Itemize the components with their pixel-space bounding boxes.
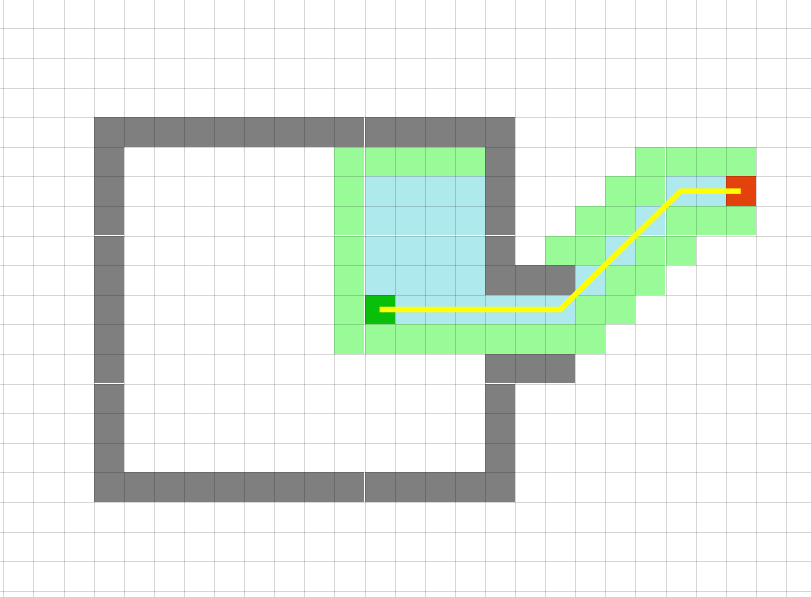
visited-cell bbox=[395, 176, 425, 206]
visited-cell bbox=[395, 236, 425, 266]
wall-cell[interactable] bbox=[94, 117, 124, 147]
frontier-cell bbox=[696, 206, 726, 236]
wall-cell[interactable] bbox=[485, 354, 515, 384]
wall-cell[interactable] bbox=[304, 117, 334, 147]
frontier-cell bbox=[455, 324, 485, 354]
frontier-cell bbox=[334, 324, 364, 354]
wall-cell[interactable] bbox=[274, 117, 304, 147]
start-cell[interactable] bbox=[365, 295, 395, 325]
wall-cell[interactable] bbox=[485, 176, 515, 206]
frontier-cell bbox=[395, 324, 425, 354]
visited-cell bbox=[395, 206, 425, 236]
cells-layer bbox=[0, 0, 811, 597]
wall-cell[interactable] bbox=[94, 354, 124, 384]
wall-cell[interactable] bbox=[94, 295, 124, 325]
frontier-cell bbox=[395, 147, 425, 177]
wall-cell[interactable] bbox=[455, 472, 485, 502]
frontier-cell bbox=[575, 206, 605, 236]
wall-cell[interactable] bbox=[485, 236, 515, 266]
wall-cell[interactable] bbox=[244, 117, 274, 147]
wall-cell[interactable] bbox=[214, 117, 244, 147]
wall-cell[interactable] bbox=[154, 117, 184, 147]
frontier-cell bbox=[666, 206, 696, 236]
visited-cell bbox=[425, 206, 455, 236]
visited-cell bbox=[365, 265, 395, 295]
wall-cell[interactable] bbox=[485, 206, 515, 236]
wall-cell[interactable] bbox=[334, 472, 364, 502]
wall-cell[interactable] bbox=[485, 384, 515, 414]
visited-cell bbox=[365, 206, 395, 236]
wall-cell[interactable] bbox=[94, 265, 124, 295]
pathfinding-grid-canvas[interactable] bbox=[0, 0, 811, 597]
visited-cell bbox=[365, 176, 395, 206]
goal-cell[interactable] bbox=[726, 176, 756, 206]
wall-cell[interactable] bbox=[94, 384, 124, 414]
visited-cell bbox=[395, 295, 425, 325]
visited-cell bbox=[425, 295, 455, 325]
wall-cell[interactable] bbox=[485, 443, 515, 473]
wall-cell[interactable] bbox=[365, 472, 395, 502]
wall-cell[interactable] bbox=[94, 206, 124, 236]
frontier-cell bbox=[334, 176, 364, 206]
wall-cell[interactable] bbox=[94, 324, 124, 354]
frontier-cell bbox=[334, 147, 364, 177]
frontier-cell bbox=[575, 236, 605, 266]
frontier-cell bbox=[365, 324, 395, 354]
frontier-cell bbox=[605, 176, 635, 206]
frontier-cell bbox=[575, 324, 605, 354]
wall-cell[interactable] bbox=[545, 265, 575, 295]
visited-cell bbox=[455, 176, 485, 206]
wall-cell[interactable] bbox=[94, 176, 124, 206]
visited-cell bbox=[455, 236, 485, 266]
visited-cell bbox=[425, 176, 455, 206]
visited-cell bbox=[666, 176, 696, 206]
frontier-cell bbox=[666, 147, 696, 177]
wall-cell[interactable] bbox=[94, 443, 124, 473]
wall-cell[interactable] bbox=[184, 472, 214, 502]
wall-cell[interactable] bbox=[365, 117, 395, 147]
visited-cell bbox=[425, 265, 455, 295]
visited-cell bbox=[696, 176, 726, 206]
wall-cell[interactable] bbox=[154, 472, 184, 502]
visited-cell bbox=[455, 206, 485, 236]
wall-cell[interactable] bbox=[485, 117, 515, 147]
wall-cell[interactable] bbox=[545, 354, 575, 384]
visited-cell bbox=[635, 206, 665, 236]
frontier-cell bbox=[365, 147, 395, 177]
wall-cell[interactable] bbox=[214, 472, 244, 502]
wall-cell[interactable] bbox=[425, 472, 455, 502]
wall-cell[interactable] bbox=[515, 354, 545, 384]
visited-cell bbox=[455, 295, 485, 325]
wall-cell[interactable] bbox=[334, 117, 364, 147]
visited-cell bbox=[575, 265, 605, 295]
frontier-cell bbox=[635, 265, 665, 295]
visited-cell bbox=[425, 236, 455, 266]
wall-cell[interactable] bbox=[485, 265, 515, 295]
visited-cell bbox=[365, 236, 395, 266]
visited-cell bbox=[515, 295, 545, 325]
frontier-cell bbox=[605, 265, 635, 295]
frontier-cell bbox=[605, 295, 635, 325]
wall-cell[interactable] bbox=[184, 117, 214, 147]
frontier-cell bbox=[635, 176, 665, 206]
visited-cell bbox=[485, 295, 515, 325]
wall-cell[interactable] bbox=[395, 117, 425, 147]
wall-cell[interactable] bbox=[94, 413, 124, 443]
wall-cell[interactable] bbox=[244, 472, 274, 502]
frontier-cell bbox=[334, 295, 364, 325]
visited-cell bbox=[455, 265, 485, 295]
frontier-cell bbox=[666, 236, 696, 266]
wall-cell[interactable] bbox=[455, 117, 485, 147]
frontier-cell bbox=[545, 324, 575, 354]
wall-cell[interactable] bbox=[94, 472, 124, 502]
wall-cell[interactable] bbox=[124, 117, 154, 147]
frontier-cell bbox=[334, 236, 364, 266]
frontier-cell bbox=[334, 206, 364, 236]
frontier-cell bbox=[425, 147, 455, 177]
visited-cell bbox=[395, 265, 425, 295]
wall-cell[interactable] bbox=[485, 413, 515, 443]
wall-cell[interactable] bbox=[94, 236, 124, 266]
frontier-cell bbox=[635, 236, 665, 266]
frontier-cell bbox=[726, 147, 756, 177]
wall-cell[interactable] bbox=[515, 265, 545, 295]
wall-cell[interactable] bbox=[304, 472, 334, 502]
wall-cell[interactable] bbox=[124, 472, 154, 502]
frontier-cell bbox=[696, 147, 726, 177]
frontier-cell bbox=[455, 147, 485, 177]
wall-cell[interactable] bbox=[395, 472, 425, 502]
frontier-cell bbox=[334, 265, 364, 295]
frontier-cell bbox=[605, 206, 635, 236]
frontier-cell bbox=[726, 206, 756, 236]
frontier-cell bbox=[545, 236, 575, 266]
frontier-cell bbox=[575, 295, 605, 325]
frontier-cell bbox=[485, 324, 515, 354]
wall-cell[interactable] bbox=[94, 147, 124, 177]
visited-cell bbox=[545, 295, 575, 325]
frontier-cell bbox=[635, 147, 665, 177]
visited-cell bbox=[605, 236, 635, 266]
wall-cell[interactable] bbox=[425, 117, 455, 147]
frontier-cell bbox=[425, 324, 455, 354]
wall-cell[interactable] bbox=[274, 472, 304, 502]
wall-cell[interactable] bbox=[485, 472, 515, 502]
frontier-cell bbox=[515, 324, 545, 354]
wall-cell[interactable] bbox=[485, 147, 515, 177]
